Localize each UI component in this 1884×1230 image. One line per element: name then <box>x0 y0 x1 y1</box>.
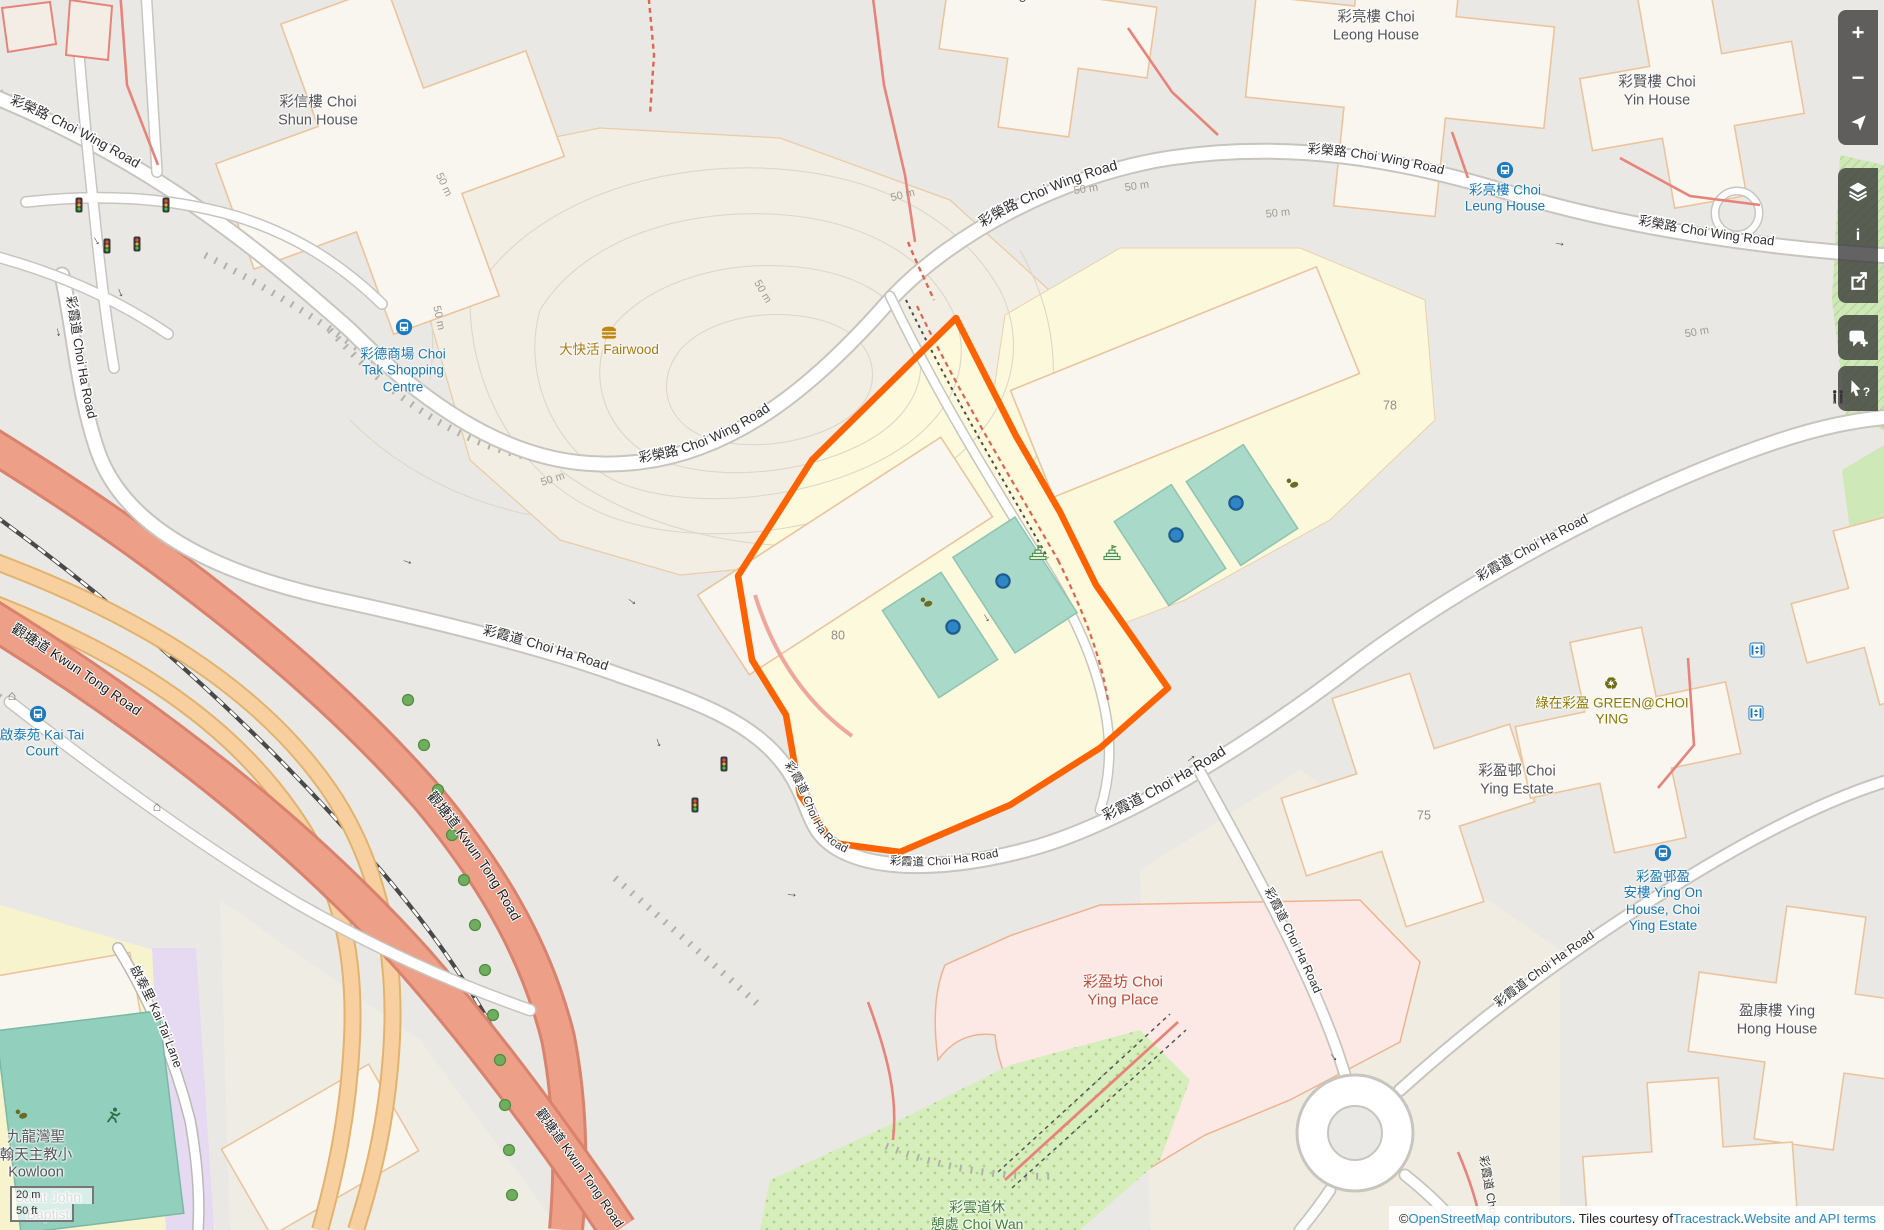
add-note-button[interactable] <box>1838 315 1878 360</box>
attribution-prefix: © <box>1399 1211 1409 1226</box>
note-control-group <box>1838 315 1878 360</box>
terms-link[interactable]: Website and API terms <box>1744 1211 1876 1226</box>
query-control-group: ? <box>1838 366 1878 411</box>
osm-contributors-link[interactable]: OpenStreetMap contributors <box>1408 1211 1571 1226</box>
layers-icon <box>1847 180 1869 202</box>
question-mark: ? <box>1863 385 1870 399</box>
zoom-out-button[interactable]: − <box>1838 55 1878 100</box>
scale-imperial: 50 ft <box>10 1204 74 1222</box>
locate-button[interactable] <box>1838 100 1878 145</box>
plus-icon: + <box>1852 20 1865 46</box>
locate-arrow-icon <box>1848 113 1868 133</box>
info-icon: i <box>1856 227 1860 245</box>
info-button[interactable]: i <box>1838 213 1878 258</box>
zoom-control-group: + − <box>1838 10 1878 145</box>
layers-control-group: i <box>1838 168 1878 303</box>
scale-metric: 20 m <box>10 1186 94 1204</box>
share-button[interactable] <box>1838 258 1878 303</box>
map-canvas: 彩榮路 Choi Wing Road 彩榮路 Choi Wing Road 彩榮… <box>0 0 1884 1230</box>
map-viewport[interactable]: 彩榮路 Choi Wing Road 彩榮路 Choi Wing Road 彩榮… <box>0 0 1884 1230</box>
minus-icon: − <box>1852 65 1865 91</box>
query-features-button[interactable]: ? <box>1838 366 1878 411</box>
layers-button[interactable] <box>1838 168 1878 213</box>
roundabout <box>1297 1075 1413 1191</box>
scale-bar: 20 m 50 ft <box>10 1186 94 1222</box>
share-icon <box>1848 271 1868 291</box>
attribution-mid1: . Tiles courtesy of <box>1572 1211 1673 1226</box>
attribution-bar: © OpenStreetMap contributors . Tiles cou… <box>1389 1206 1884 1230</box>
add-note-icon <box>1847 327 1869 349</box>
zoom-in-button[interactable]: + <box>1838 10 1878 55</box>
tracestrack-link[interactable]: Tracestrack <box>1673 1211 1740 1226</box>
